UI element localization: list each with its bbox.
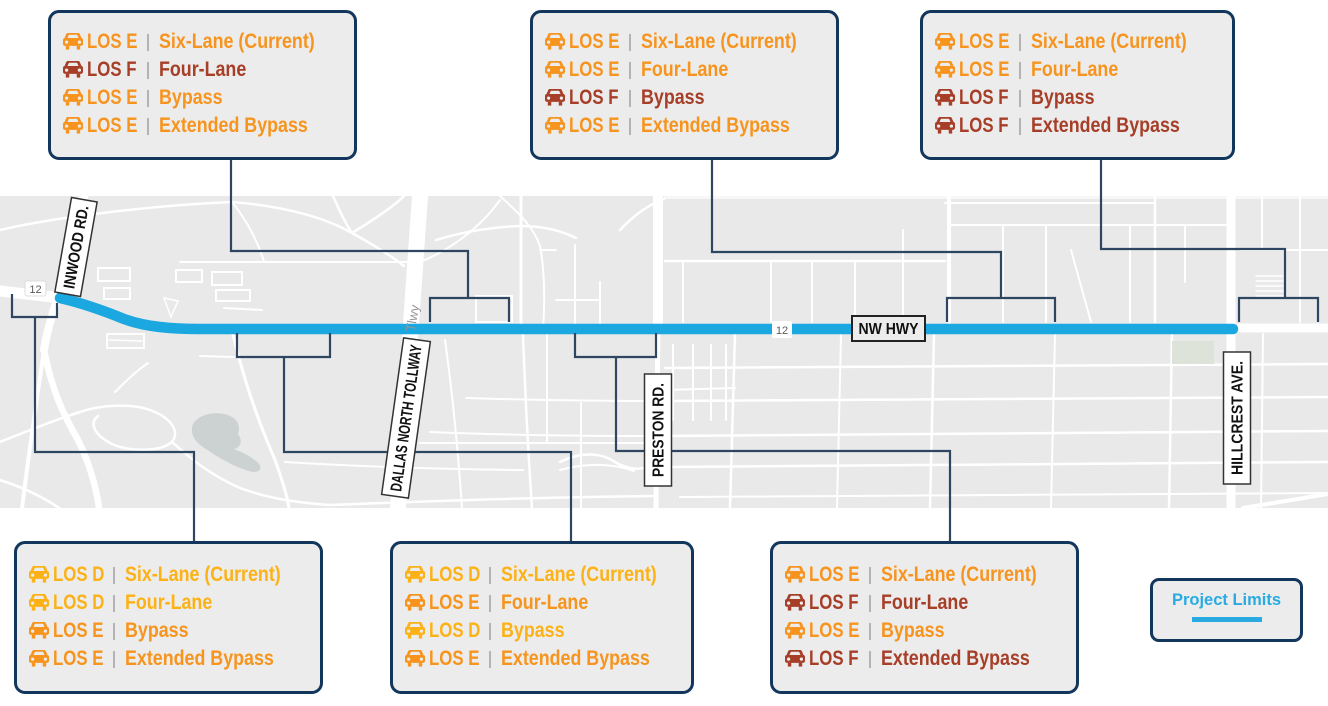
svg-text:PRESTON RD.: PRESTON RD. bbox=[651, 383, 668, 477]
svg-text:HILLCREST AVE.: HILLCREST AVE. bbox=[1230, 361, 1247, 475]
svg-text:NW HWY: NW HWY bbox=[859, 321, 919, 338]
svg-text:12: 12 bbox=[29, 284, 41, 296]
svg-text:12: 12 bbox=[776, 325, 788, 337]
